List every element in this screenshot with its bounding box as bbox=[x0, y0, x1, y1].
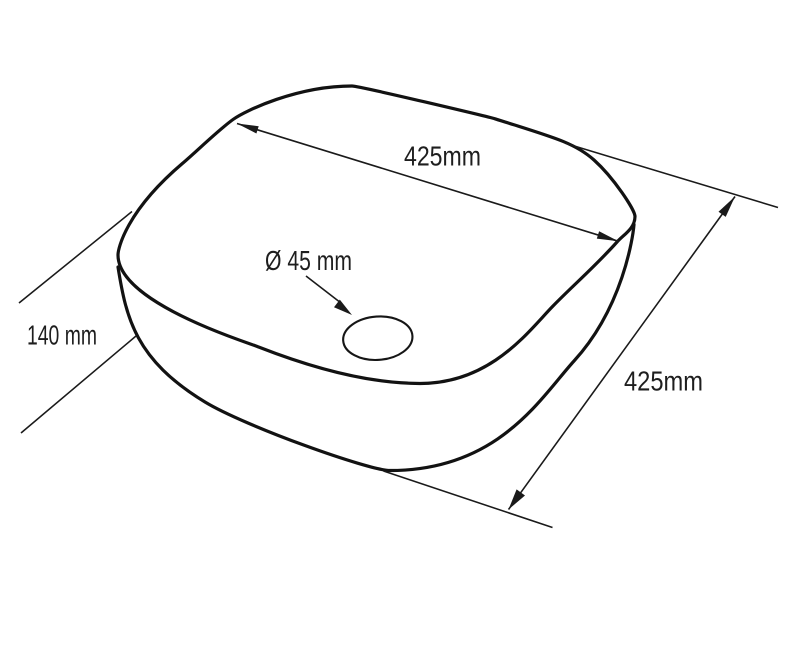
svg-text:425mm: 425mm bbox=[624, 366, 703, 397]
svg-text:Ø 45 mm: Ø 45 mm bbox=[265, 245, 352, 276]
svg-text:140 mm: 140 mm bbox=[27, 320, 97, 351]
svg-text:425mm: 425mm bbox=[404, 141, 481, 172]
